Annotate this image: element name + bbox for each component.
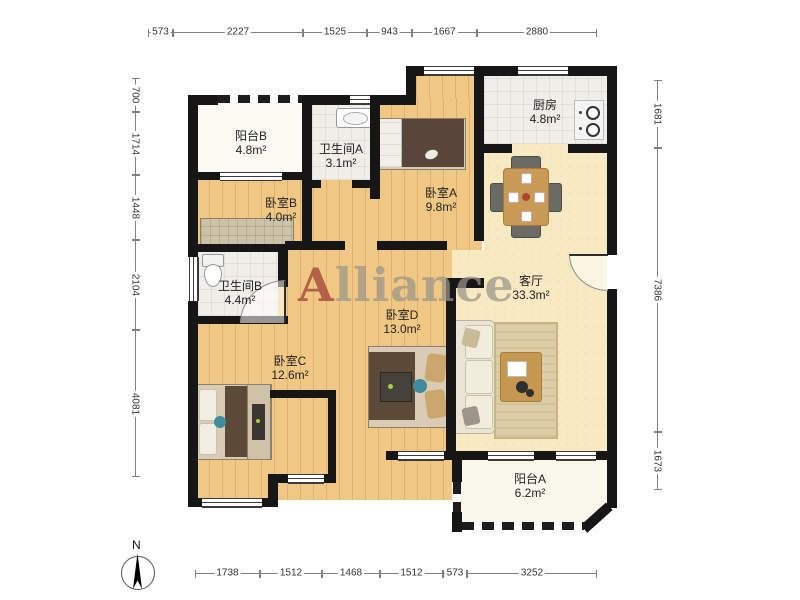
- stove-icon: [574, 100, 604, 140]
- wall-segment: [188, 244, 288, 252]
- dim-label: 1681: [652, 101, 663, 127]
- wall-segment: [452, 460, 462, 482]
- dim-bottom-5: 3252: [467, 573, 597, 574]
- dim-bottom-3: 1512: [380, 573, 443, 574]
- sliding-door: [220, 172, 282, 181]
- dim-label: 1468: [338, 568, 364, 579]
- dim-label: 1738: [214, 568, 240, 579]
- dining-chair: [547, 183, 562, 212]
- floor-plan-canvas: Alliance 阳台B4.8m² 卫生间A3.1m² 卧室B4.0m² 卧室A…: [0, 0, 800, 600]
- sofa-icon: [452, 320, 495, 434]
- stove-burner: [586, 106, 600, 120]
- wall-segment: [534, 451, 556, 460]
- wall-segment: [282, 172, 310, 180]
- room-label-bedroom-b: 卧室B4.0m²: [265, 196, 297, 225]
- room-label-bathroom-b: 卫生间B4.4m²: [218, 279, 262, 308]
- dim-label: 2104: [130, 272, 141, 298]
- wall-segment: [452, 512, 462, 532]
- window: [424, 66, 480, 76]
- dim-label: 573: [445, 568, 466, 579]
- dim-top-0: 573: [148, 32, 173, 33]
- bed-a-blanket: [402, 119, 464, 167]
- tv-power-light: [256, 419, 260, 423]
- stove-knob: [579, 111, 582, 114]
- sofa-pillow: [461, 406, 480, 427]
- dim-label: 1512: [278, 568, 304, 579]
- window: [202, 498, 262, 508]
- wardrobe-icon: [247, 384, 271, 460]
- dim-label: 1512: [398, 568, 424, 579]
- dim-label: 1525: [322, 27, 348, 38]
- dim-label: 4081: [130, 390, 141, 416]
- wall-segment: [474, 153, 484, 241]
- window: [556, 451, 596, 461]
- dim-label: 7386: [652, 277, 663, 303]
- dim-bottom-4: 573: [443, 573, 467, 574]
- balcony-a-open-edge: [453, 482, 461, 512]
- wall-segment: [474, 144, 512, 153]
- wall-segment: [386, 451, 398, 460]
- sink-icon: [336, 108, 374, 128]
- window: [488, 451, 534, 461]
- wall-segment: [188, 172, 220, 180]
- dim-left-0: 700: [135, 78, 136, 112]
- watermark-rest: lliance: [335, 258, 515, 312]
- plate: [521, 173, 532, 184]
- bed-a-pillows: [379, 119, 402, 167]
- bed-a-icon: [378, 118, 466, 170]
- stove-burner: [586, 123, 600, 137]
- balcony-a-open-edge: [462, 522, 584, 530]
- bed-d-deco-pillow: [413, 379, 427, 393]
- dim-bottom-2: 1468: [322, 573, 380, 574]
- wall-segment: [607, 460, 617, 508]
- bed-c-pillow: [199, 423, 217, 455]
- sofa-cushion: [465, 360, 493, 394]
- dim-left-4: 4081: [135, 330, 136, 477]
- dim-label: 2880: [524, 27, 550, 38]
- coffee-table-icon: [500, 352, 542, 402]
- dim-label: 1667: [431, 27, 457, 38]
- wall-segment: [285, 241, 345, 250]
- dim-top-1: 2227: [173, 32, 303, 33]
- tray: [507, 361, 527, 377]
- wall-segment: [328, 390, 336, 476]
- dim-top-4: 1667: [412, 32, 477, 33]
- tv-power-light: [388, 384, 393, 389]
- dim-top-3: 943: [367, 32, 412, 33]
- dim-label: 943: [379, 27, 400, 38]
- window: [288, 474, 324, 484]
- bed-c-deco-pillow: [214, 416, 226, 428]
- room-label-bedroom-c: 卧室C12.6m²: [271, 354, 308, 383]
- stove-knob: [579, 127, 582, 130]
- dim-top-5: 2880: [477, 32, 597, 33]
- dim-label: 573: [150, 27, 171, 38]
- dim-label: 3252: [519, 568, 545, 579]
- wall-segment: [370, 95, 380, 199]
- dim-label: 1714: [130, 130, 141, 156]
- dim-label: 1673: [652, 448, 663, 474]
- dim-right-1: 7386: [657, 148, 658, 432]
- dining-table: [503, 168, 549, 226]
- watermark: Alliance: [298, 258, 515, 312]
- kettle: [526, 389, 534, 397]
- room-label-balcony-b: 阳台B4.8m²: [235, 129, 267, 158]
- sink-basin: [343, 112, 368, 125]
- dim-bottom-1: 1512: [260, 573, 322, 574]
- dim-label: 700: [130, 85, 141, 106]
- wall-segment: [607, 289, 617, 460]
- wall-segment: [596, 451, 617, 460]
- dim-right-2: 1673: [657, 432, 658, 490]
- dim-left-1: 1714: [135, 112, 136, 175]
- room-label-kitchen: 厨房4.8m²: [530, 98, 561, 127]
- north-label: N: [132, 538, 141, 552]
- dim-top-2: 1525: [303, 32, 367, 33]
- window: [518, 66, 570, 76]
- dim-right-0: 1681: [657, 80, 658, 148]
- bed-d-pillow: [424, 353, 448, 384]
- dim-label: 2227: [225, 27, 251, 38]
- dim-left-3: 2104: [135, 240, 136, 330]
- room-label-bedroom-d: 卧室D13.0m²: [383, 308, 420, 337]
- dining-set-icon: [490, 156, 560, 242]
- wall-segment: [188, 301, 198, 507]
- wall-segment: [188, 498, 202, 507]
- room-label-bedroom-a: 卧室A9.8m²: [425, 186, 457, 215]
- tv-panel: [252, 404, 265, 440]
- room-label-balcony-a: 阳台A6.2m²: [514, 472, 546, 501]
- plate: [534, 192, 545, 203]
- tv-cabinet-icon: [380, 372, 412, 402]
- room-label-living-room: 客厅33.3m²: [512, 274, 549, 303]
- watermark-first-letter: A: [298, 258, 335, 312]
- wall-segment: [270, 390, 336, 398]
- dim-bottom-0: 1738: [195, 573, 260, 574]
- room-label-bathroom-a: 卫生间A3.1m²: [319, 142, 363, 171]
- wall-segment: [568, 144, 607, 153]
- plate: [521, 211, 532, 222]
- wall-segment: [478, 66, 518, 76]
- window: [398, 451, 444, 461]
- wall-segment: [406, 66, 424, 76]
- bedroom-a-upper-floor: [416, 76, 474, 98]
- bed-d-pillow: [424, 389, 448, 420]
- wall-segment: [307, 180, 321, 188]
- dim-left-2: 1448: [135, 175, 136, 240]
- bed-c-pillow: [199, 389, 217, 421]
- balcony-b-open-edge: [218, 95, 304, 103]
- wall-segment: [474, 66, 484, 153]
- centerpiece: [522, 193, 530, 201]
- wall-segment: [377, 241, 447, 250]
- wall-segment: [276, 474, 288, 483]
- window: [189, 257, 199, 301]
- plate: [508, 192, 519, 203]
- dim-label: 1448: [130, 194, 141, 220]
- wall-segment: [607, 66, 617, 255]
